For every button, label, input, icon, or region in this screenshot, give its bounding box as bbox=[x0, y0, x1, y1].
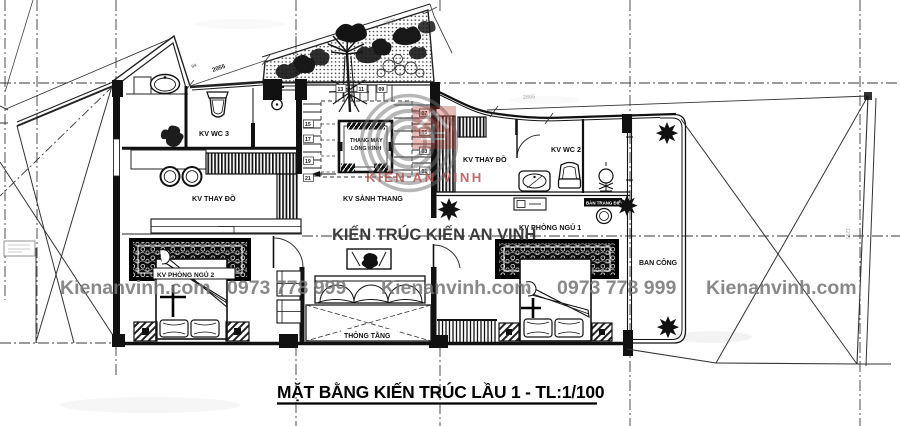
svg-text:11: 11 bbox=[359, 87, 365, 93]
svg-text:19: 19 bbox=[305, 159, 311, 165]
svg-text:BAN CÔNG: BAN CÔNG bbox=[639, 258, 678, 267]
svg-text:Kienanvinh.com: Kienanvinh.com bbox=[60, 277, 211, 299]
svg-text:KV WC 3: KV WC 3 bbox=[199, 129, 229, 138]
svg-text:KIẾN TRÚC KIẾN AN VINH: KIẾN TRÚC KIẾN AN VINH bbox=[332, 225, 536, 244]
svg-text:Kienanvinh.com: Kienanvinh.com bbox=[706, 277, 857, 299]
svg-text:13: 13 bbox=[338, 87, 344, 93]
svg-text:09: 09 bbox=[379, 87, 385, 93]
svg-text:KIẾN AN VINH: KIẾN AN VINH bbox=[366, 170, 484, 185]
svg-text:MẶT BẰNG KIẾN TRÚC LẦU 1 - TL:: MẶT BẰNG KIẾN TRÚC LẦU 1 - TL:1/100 bbox=[277, 382, 604, 402]
svg-text:21: 21 bbox=[305, 176, 311, 182]
svg-text:15: 15 bbox=[305, 122, 311, 128]
svg-text:1295: 1295 bbox=[844, 228, 850, 239]
svg-text:KV SẢNH THANG: KV SẢNH THANG bbox=[343, 194, 403, 203]
svg-text:KV WC 2: KV WC 2 bbox=[551, 145, 581, 154]
svg-text:KV THAY ĐỒ: KV THAY ĐỒ bbox=[463, 154, 507, 164]
svg-text:KV THAY ĐỒ: KV THAY ĐỒ bbox=[192, 193, 236, 203]
svg-text:Kienanvinh.com: Kienanvinh.com bbox=[381, 277, 532, 299]
svg-text:17: 17 bbox=[305, 137, 311, 143]
svg-text:0973 778 999: 0973 778 999 bbox=[557, 277, 676, 299]
svg-text:0973 778 999: 0973 778 999 bbox=[227, 277, 346, 299]
